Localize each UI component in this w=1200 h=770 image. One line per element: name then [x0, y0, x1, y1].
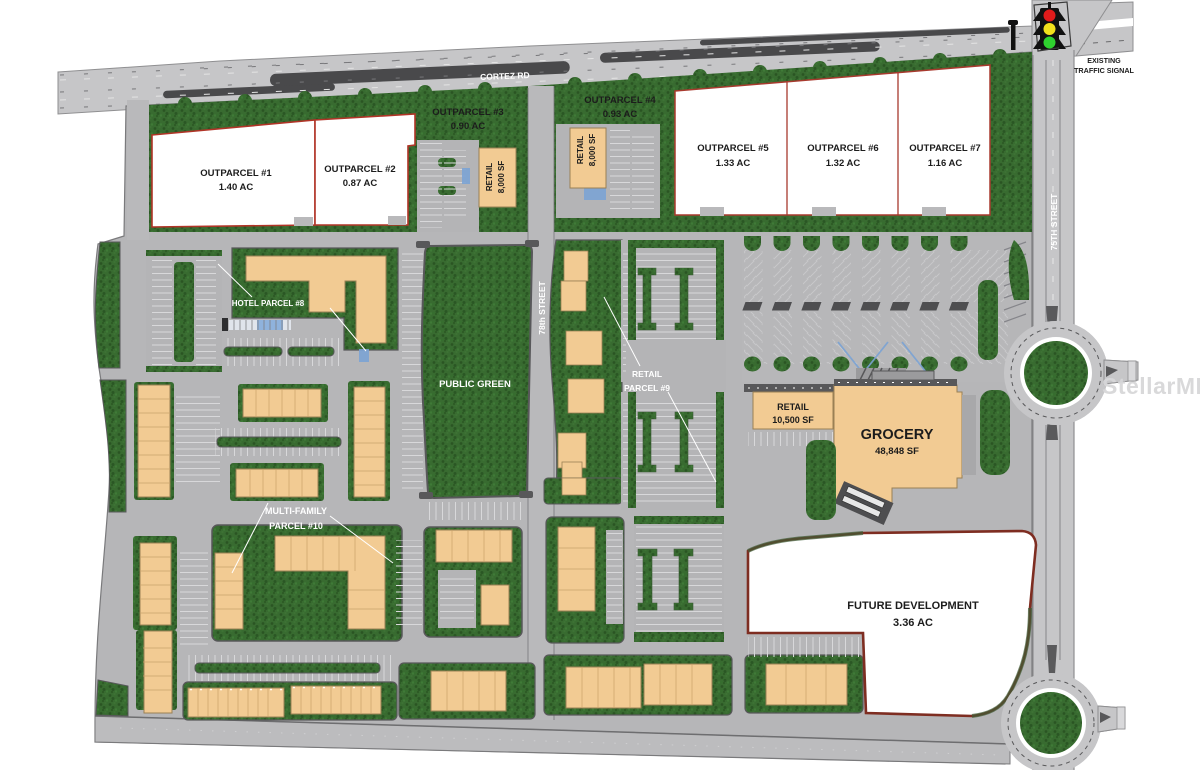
- svg-text:FUTURE DEVELOPMENT: FUTURE DEVELOPMENT: [847, 600, 979, 612]
- svg-text:MULTI-FAMILY: MULTI-FAMILY: [265, 506, 327, 516]
- svg-text:OUTPARCEL #2: OUTPARCEL #2: [324, 164, 395, 175]
- svg-text:CORTEZ RD: CORTEZ RD: [480, 70, 530, 82]
- svg-text:0.93 AC: 0.93 AC: [603, 109, 638, 120]
- svg-text:TRAFFIC SIGNAL: TRAFFIC SIGNAL: [1074, 66, 1134, 75]
- svg-text:0.87 AC: 0.87 AC: [343, 178, 378, 189]
- svg-text:RETAIL: RETAIL: [576, 136, 585, 164]
- svg-text:OUTPARCEL #3: OUTPARCEL #3: [432, 107, 503, 118]
- svg-text:OUTPARCEL #5: OUTPARCEL #5: [697, 143, 769, 154]
- svg-text:78th STREET: 78th STREET: [537, 281, 547, 335]
- svg-text:1.40 AC: 1.40 AC: [219, 182, 254, 193]
- svg-text:GROCERY: GROCERY: [861, 427, 934, 443]
- svg-text:OUTPARCEL #1: OUTPARCEL #1: [200, 168, 272, 179]
- svg-text:StellarMLS: StellarMLS: [1102, 373, 1200, 399]
- svg-text:RETAIL: RETAIL: [485, 163, 494, 191]
- svg-text:OUTPARCEL #4: OUTPARCEL #4: [584, 95, 656, 106]
- svg-text:PARCEL #10: PARCEL #10: [269, 521, 323, 531]
- svg-text:RETAIL: RETAIL: [632, 369, 662, 379]
- svg-text:48,848 SF: 48,848 SF: [875, 446, 919, 457]
- svg-text:HOTEL PARCEL #8: HOTEL PARCEL #8: [232, 299, 305, 308]
- svg-text:10,500 SF: 10,500 SF: [772, 415, 814, 425]
- svg-text:8,000 SF: 8,000 SF: [497, 161, 506, 194]
- svg-text:PARCEL #9: PARCEL #9: [624, 383, 670, 393]
- svg-text:1.33 AC: 1.33 AC: [716, 158, 751, 169]
- svg-text:RETAIL: RETAIL: [777, 402, 809, 412]
- svg-text:1.32 AC: 1.32 AC: [826, 158, 861, 169]
- svg-text:PUBLIC GREEN: PUBLIC GREEN: [439, 379, 511, 390]
- svg-text:0.90 AC: 0.90 AC: [451, 121, 486, 132]
- svg-text:OUTPARCEL #7: OUTPARCEL #7: [909, 143, 980, 154]
- svg-text:8,000 SF: 8,000 SF: [588, 134, 597, 167]
- svg-text:EXISTING: EXISTING: [1087, 56, 1121, 65]
- svg-text:OUTPARCEL #6: OUTPARCEL #6: [807, 143, 878, 154]
- svg-text:75TH STREET: 75TH STREET: [1049, 193, 1059, 250]
- svg-text:3.36 AC: 3.36 AC: [893, 617, 933, 629]
- svg-text:1.16 AC: 1.16 AC: [928, 158, 963, 169]
